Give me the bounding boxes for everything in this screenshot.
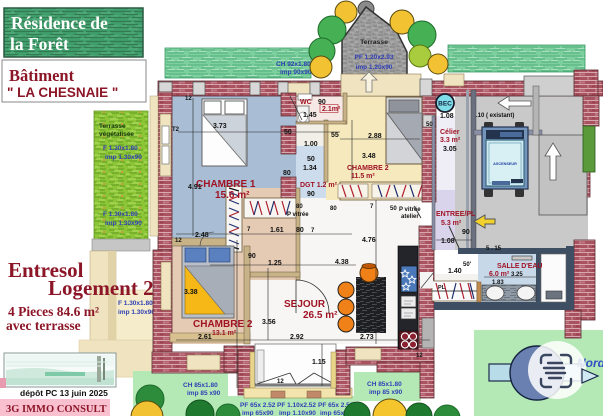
svg-text:26.5 m²: 26.5 m² <box>303 310 338 321</box>
svg-text:CHAMBRE 1: CHAMBRE 1 <box>196 179 256 190</box>
svg-text:Résidence de: Résidence de <box>11 13 108 33</box>
svg-text:CH 92x1.80: CH 92x1.80 <box>276 61 311 68</box>
svg-text:imp 1.20x90: imp 1.20x90 <box>356 64 393 71</box>
svg-text:ENTREE/PL: ENTREE/PL <box>436 211 476 218</box>
svg-text:PF 1.20x2.93: PF 1.20x2.93 <box>354 54 393 61</box>
svg-text:DGT 1.2 m²: DGT 1.2 m² <box>300 182 338 189</box>
svg-text:1.08: 1.08 <box>440 113 454 120</box>
svg-text:1.40: 1.40 <box>448 268 462 275</box>
svg-text:SEJOUR: SEJOUR <box>284 299 326 310</box>
svg-text:3.73: 3.73 <box>213 123 227 130</box>
svg-text:2.61: 2.61 <box>198 334 212 341</box>
svg-text:CH 85x1.80: CH 85x1.80 <box>183 382 218 389</box>
svg-text:PL: PL <box>438 285 446 291</box>
svg-text:50': 50' <box>463 262 472 268</box>
svg-text:imp 90x90: imp 90x90 <box>280 69 312 76</box>
svg-text:la Forêt: la Forêt <box>10 34 69 54</box>
svg-text:1.08: 1.08 <box>441 238 455 245</box>
svg-text:imp 1.30x90: imp 1.30x90 <box>105 220 142 227</box>
svg-text:3.38: 3.38 <box>184 289 198 296</box>
svg-text:3.48: 3.48 <box>362 153 376 160</box>
svg-text:SALLE D'EAU: SALLE D'EAU <box>497 263 542 270</box>
svg-text:imp 85 x90: imp 85 x90 <box>187 390 221 397</box>
svg-text:3.05: 3.05 <box>443 146 457 153</box>
svg-text:Logement 2: Logement 2 <box>48 276 154 300</box>
svg-text:4.76: 4.76 <box>362 237 376 244</box>
svg-text:2.92: 2.92 <box>290 334 304 341</box>
svg-text:PF 65x 2.52: PF 65x 2.52 <box>240 402 276 409</box>
svg-text:80: 80 <box>296 204 303 210</box>
svg-text:PF 1.10x2.52: PF 1.10x2.52 <box>277 402 316 409</box>
svg-text:3G IMMO CONSULT: 3G IMMO CONSULT <box>6 404 107 415</box>
svg-text:80: 80 <box>283 170 291 177</box>
svg-text:55: 55 <box>331 132 339 139</box>
svg-text:90: 90 <box>462 229 470 236</box>
svg-text:50: 50 <box>390 206 397 212</box>
svg-text:2.88: 2.88 <box>368 133 382 140</box>
svg-text:2.73: 2.73 <box>360 334 374 341</box>
svg-text:imp 1.30x90: imp 1.30x90 <box>118 309 155 316</box>
svg-text:13.1 m²: 13.1 m² <box>212 330 237 337</box>
svg-text:Terrasse: Terrasse <box>99 123 126 130</box>
svg-text:imp 1.30x90: imp 1.30x90 <box>105 154 142 161</box>
svg-text:12: 12 <box>185 96 192 102</box>
svg-text:11.5 m²: 11.5 m² <box>351 173 375 180</box>
svg-text:Bâtiment: Bâtiment <box>9 66 75 85</box>
svg-text:50: 50 <box>426 122 433 128</box>
svg-text:3.56: 3.56 <box>262 319 276 326</box>
svg-text:50: 50 <box>307 156 315 163</box>
svg-text:Terrasse: Terrasse <box>360 39 388 46</box>
svg-text:5 . 15: 5 . 15 <box>486 246 502 252</box>
svg-text:1.34: 1.34 <box>303 165 317 172</box>
svg-text:1.45: 1.45 <box>303 112 317 119</box>
svg-text:1.25: 1.25 <box>268 260 282 267</box>
svg-text:ASCENSEUR: ASCENSEUR <box>493 162 517 166</box>
svg-text:90: 90 <box>248 253 256 260</box>
svg-text:1.83: 1.83 <box>492 280 504 286</box>
svg-text:WC: WC <box>300 99 312 106</box>
svg-text:CH 85x1.80: CH 85x1.80 <box>367 381 402 388</box>
svg-text:12: 12 <box>416 353 423 359</box>
svg-text:5.3 m²: 5.3 m² <box>441 220 462 227</box>
svg-text:" LA CHESNAIE ": " LA CHESNAIE " <box>7 85 118 100</box>
svg-text:12: 12 <box>175 238 182 244</box>
svg-text:avec terrasse: avec terrasse <box>6 318 81 333</box>
svg-text:12: 12 <box>277 379 284 385</box>
svg-text:végétalisée: végétalisée <box>99 131 134 138</box>
svg-text:80: 80 <box>330 206 337 212</box>
svg-text:F 1.30x1.80: F 1.30x1.80 <box>103 145 138 152</box>
svg-text:T2: T2 <box>172 127 180 133</box>
svg-text:4 Pieces 84.6 m²: 4 Pieces 84.6 m² <box>8 304 99 319</box>
svg-text:BEC: BEC <box>438 101 452 108</box>
svg-text:15.6 m²: 15.6 m² <box>215 190 250 201</box>
svg-text:atelier: atelier <box>401 214 419 220</box>
svg-text:F 1.30x1.80: F 1.30x1.80 <box>103 211 138 218</box>
svg-text:3.25: 3.25 <box>511 272 523 278</box>
svg-text:50: 50 <box>284 129 292 136</box>
svg-text:3.3 m²: 3.3 m² <box>440 137 461 144</box>
svg-text:4.38: 4.38 <box>335 259 349 266</box>
svg-text:imp 65x90: imp 65x90 <box>242 410 274 416</box>
svg-text:dépôt PC 13 juin 2025: dépôt PC 13 juin 2025 <box>20 388 108 398</box>
svg-text:90: 90 <box>307 191 315 198</box>
svg-text:F 1.30x1.80: F 1.30x1.80 <box>118 300 153 307</box>
svg-text:1.61: 1.61 <box>270 227 284 234</box>
svg-text:4.91: 4.91 <box>188 184 202 191</box>
svg-text:6.0 m²: 6.0 m² <box>489 271 510 278</box>
svg-text:P vitrée: P vitrée <box>287 212 309 218</box>
svg-text:imp 1.10x90: imp 1.10x90 <box>279 410 316 416</box>
svg-text:CHAMBRE 2: CHAMBRE 2 <box>193 319 253 330</box>
svg-text:80: 80 <box>296 227 304 234</box>
svg-text:90: 90 <box>318 99 326 106</box>
svg-text:Célier: Célier <box>440 129 460 136</box>
svg-text:imp 85 x90: imp 85 x90 <box>369 389 403 396</box>
svg-text:1.15: 1.15 <box>312 359 326 366</box>
svg-text:.10 ( existant): .10 ( existant) <box>476 113 514 119</box>
svg-text:CHAMBRE 2: CHAMBRE 2 <box>347 165 389 172</box>
svg-text:2.48: 2.48 <box>195 232 209 239</box>
svg-text:1.00: 1.00 <box>304 141 318 148</box>
